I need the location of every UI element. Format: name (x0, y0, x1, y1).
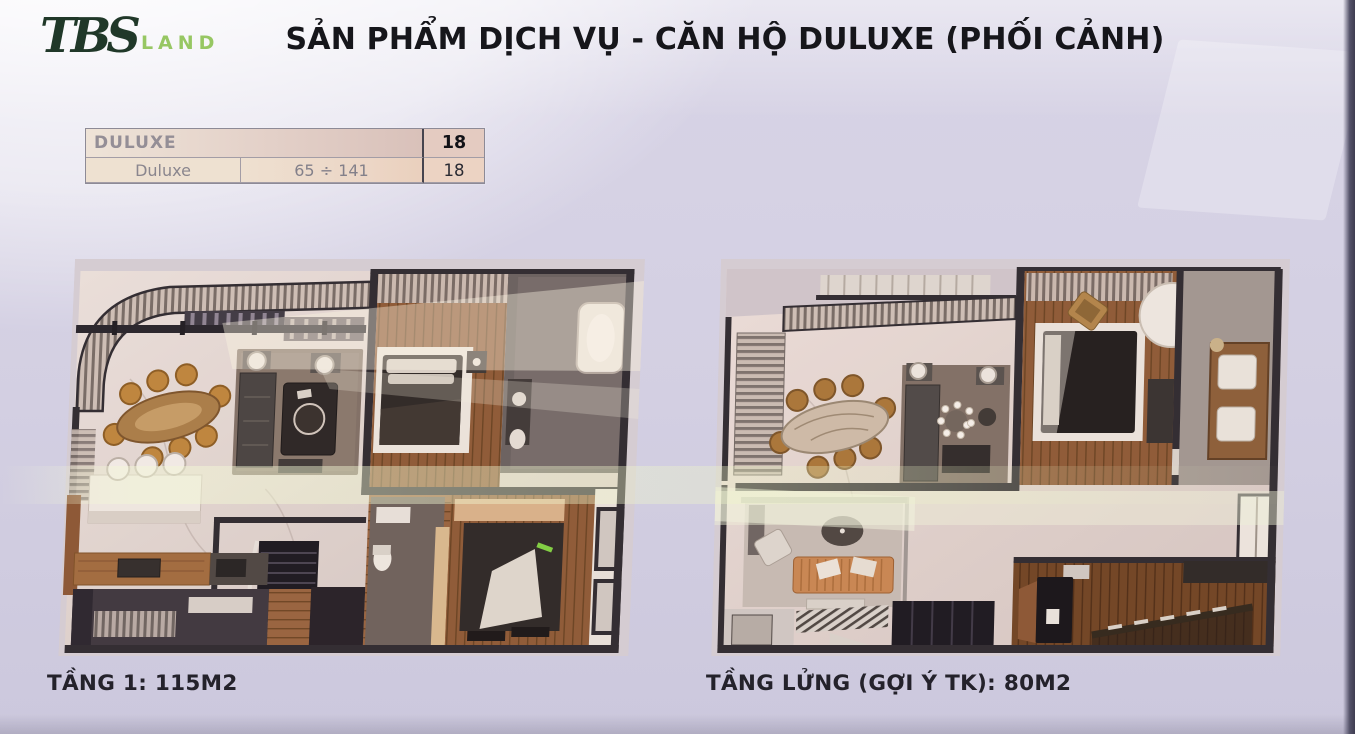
product-summary-table: DULUXE 18 Duluxe 65 ÷ 141 18 (85, 128, 485, 184)
slide-title: SẢN PHẨM DỊCH VỤ - CĂN HỘ DULUXE (PHỐI C… (276, 22, 1174, 57)
table-header-product: DULUXE (86, 129, 424, 158)
floor-plan-mezzanine-rendering (711, 259, 1290, 656)
logo-tbs-text: TBS (40, 14, 136, 58)
table-cell-area-range: 65 ÷ 141 (241, 158, 424, 183)
table-cell-count: 18 (424, 158, 484, 183)
floor-plan-level-1 (58, 259, 645, 656)
photo-edge-strip (1343, 0, 1355, 734)
logo-land-text: LAND (141, 32, 219, 54)
table-cell-product: Duluxe (86, 158, 241, 183)
floor-plan-level-1-rendering (58, 259, 645, 656)
floor-plan-mezzanine (711, 259, 1290, 656)
floor-plan-level-1-caption: TẦNG 1: 115M2 (47, 671, 238, 696)
tbs-land-logo: TBS LAND (40, 14, 219, 58)
floor-plan-mezzanine-caption: TẦNG LỬNG (GỢI Ý TK): 80M2 (706, 671, 1071, 696)
light-reflection-top-right (1137, 39, 1355, 220)
table-header-count: 18 (424, 129, 484, 158)
slide-photo: TBS LAND SẢN PHẨM DỊCH VỤ - CĂN HỘ DULUX… (0, 0, 1355, 734)
